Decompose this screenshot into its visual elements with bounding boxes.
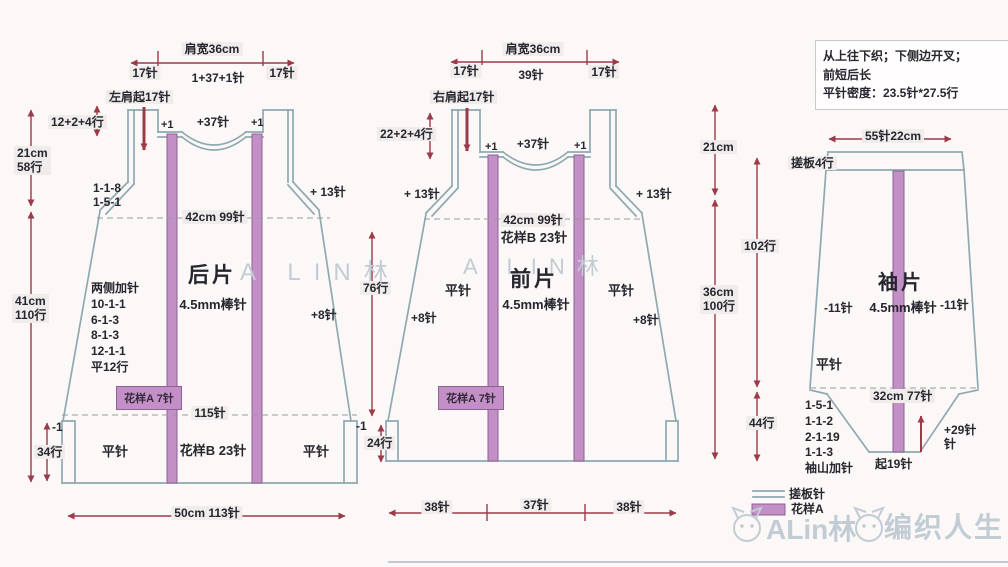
sleeve-upper-rows-label: 102行 [741,239,779,253]
front-plus1-left: +1 [485,141,498,154]
sleeve-needle-label: 4.5mm棒针 [869,300,936,316]
front-chest-label: 42cm 99针 [500,213,565,227]
back-minus1-label: -1 [52,420,63,434]
front-mid-rows-label: 76行 [360,281,391,295]
back-plus1-right: +1 [251,117,264,130]
back-patternA-box: 花样A 7针 [116,386,182,410]
back-stockinette-left-label: 平针 [102,444,128,460]
back-patternB-label: 花样B 23针 [180,443,246,459]
front-patternA-box: 花样A 7针 [438,386,504,410]
back-plus1-left: +1 [161,119,174,132]
back-chest-label: 42cm 99针 [182,210,247,224]
watermark-brand-site: 编织人生 [884,506,1004,546]
legend-garter-text: 搓板针 [789,487,825,501]
back-stockinette-right-label: 平针 [303,444,329,460]
legend-patternA-text: 花样A [791,502,824,516]
back-shoulder-width-label: 肩宽36cm [182,42,243,56]
back-armhole-left-shaping: 1-1-8 1-5-1 [93,181,121,210]
sleeve-top-width-label: 55针22cm [862,129,924,143]
back-shoulder-rows-label: 12+2+4行 [48,115,107,129]
front-patternA-band-right [574,155,584,461]
front-patternA-band-left [488,155,498,461]
legend-garter-icon [753,491,784,497]
front-shoulder-rows-label: 22+2+4行 [377,127,436,141]
back-piece-title: 后片 [188,263,236,288]
back-yoke-length-label: 21cm 58行 [14,146,51,175]
sleeve-cap-rows-label: 44行 [746,416,777,430]
front-bottom-left-sts: 38针 [421,500,452,514]
front-plus1-right: +1 [574,140,587,153]
back-shoulder-seg-left: 17针 [129,66,160,80]
sleeve-decrease-right-label: -11针 [940,298,969,312]
back-increase-right-label: +8针 [311,308,337,322]
front-piece-title: 前片 [510,267,558,292]
front-hem-rows-label: 24行 [364,436,395,450]
sleeve-cap-shaping-block: 1-5-1 1-1-2 2-1-19 1-1-3 袖山加针 [805,398,853,477]
back-armhole-right-sts: + 13针 [310,185,346,199]
sleeve-top-length-label: 21cm [700,140,737,154]
front-stockinette-left-label: 平针 [445,283,471,299]
front-stockinette-right-label: 平针 [608,283,634,299]
back-shoulder-start-label: 左肩起17针 [106,90,173,104]
front-minus1-label: -1 [356,419,367,433]
sleeve-underarm-label: 32cm 77针 [870,389,935,403]
note-line-1: 从上往下织；下侧边开叉； [823,47,1006,66]
sleeve-body-length-label: 36cm 100行 [700,285,738,314]
front-shoulder-start-label: 右肩起17针 [430,90,497,104]
front-shoulder-seg-left: 17针 [450,64,481,78]
sleeve-decrease-left-label: -11针 [824,301,853,315]
knitting-schematic-page: A LIN林 A LIN林 ALin林 编织人生 [0,0,1008,567]
front-bottom-right-sts: 38针 [613,500,644,514]
front-needle-label: 4.5mm棒针 [502,297,569,313]
sleeve-garter-label: 搓板4行 [788,156,837,170]
front-increase-right-label: +8针 [633,313,659,327]
front-increase-left-label: +8针 [411,311,437,325]
sleeve-stockinette-label: 平针 [816,357,842,373]
back-body-length-label: 41cm 110行 [12,294,49,323]
back-hem-rows-label: 34行 [34,445,65,459]
front-patternB-label: 花样B 23针 [501,230,567,246]
front-neck-sts-label: +37针 [517,137,549,151]
sleeve-piece-title: 袖片 [878,271,924,295]
watermark-cat-icon [855,508,883,541]
note-line-3: 平针密度：23.5针*27.5行 [823,84,1006,103]
front-shoulder-width-label: 肩宽36cm [503,42,564,56]
back-side-increase-block: 两侧加针 10-1-1 6-1-3 8-1-3 12-1-1 平12行 [91,281,139,376]
back-needle-label: 4.5mm棒针 [179,297,246,313]
sleeve-cast-on-label: 起19针 [875,457,912,471]
front-armhole-right-sts: + 13针 [636,187,672,201]
note-line-2: 前短后长 [823,66,1006,85]
back-bottom-width-label: 50cm 113针 [171,506,242,520]
front-bottom-center-sts: 37针 [520,498,551,512]
back-shoulder-seg-right: 17针 [266,66,297,80]
back-shoulder-seg-center: 1+37+1针 [192,71,245,85]
front-armhole-left-sts: + 13针 [404,187,440,201]
front-shoulder-seg-center: 39针 [518,68,543,82]
pattern-notes-box: 从上往下织；下侧边开叉； 前短后长 平针密度：23.5针*27.5行 [815,40,1008,110]
back-patternA-band-left [167,134,177,483]
sleeve-cap-increase-label: +29针 针 [944,423,976,452]
back-patternA-band-right [252,134,262,483]
back-hem-sts-label: 115针 [191,406,228,420]
back-neck-sts-label: +37针 [197,115,229,129]
front-shoulder-seg-right: 17针 [588,65,619,79]
